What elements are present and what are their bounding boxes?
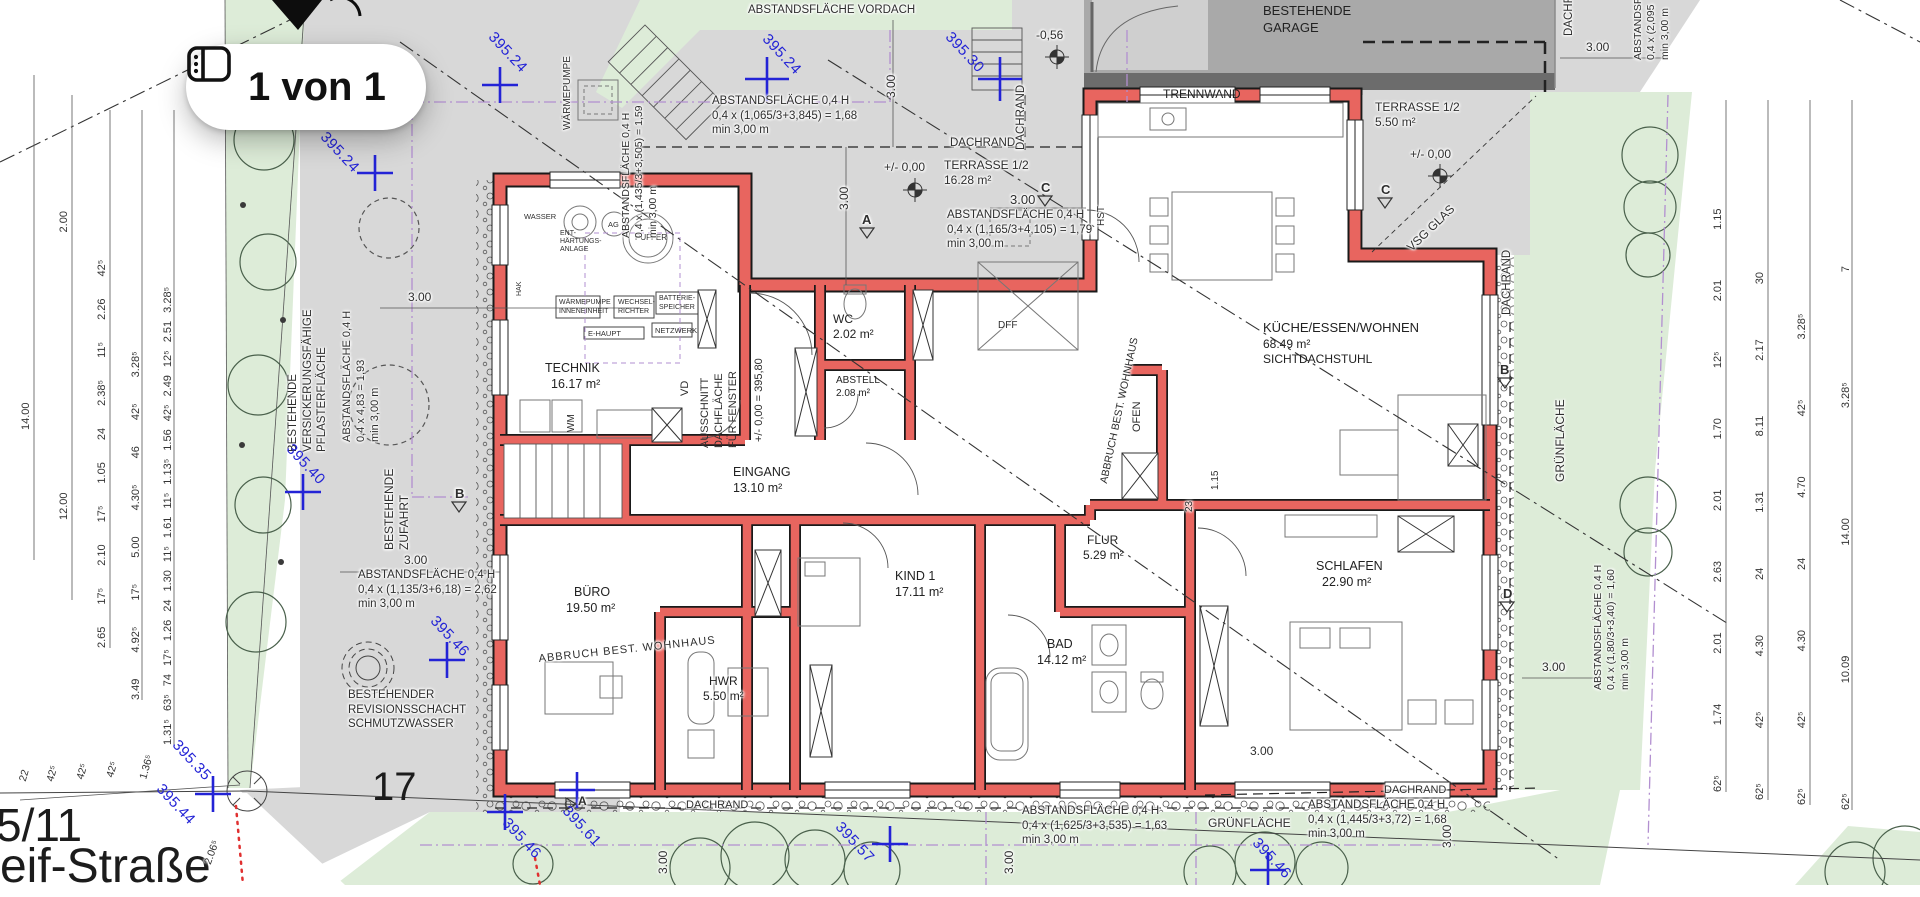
dim-value: 17⁵ [96, 588, 108, 605]
equip-wm: WM [566, 414, 579, 432]
ausschnitt-label: AUSSCHNITTDACHFLÄCHEFÜR FENSTER [698, 371, 740, 448]
abstand-a3: ABSTANDSFLÄCHE 0,4 H0,4 x (1,435/3+3,505… [620, 105, 660, 238]
marker-d-right: D [1503, 586, 1512, 603]
equip-wasser: WASSER [524, 212, 556, 222]
equip-batteriespeicher: BATTERIE-SPEICHER [659, 294, 695, 312]
dim-value: 1.31 [1754, 491, 1766, 512]
page-indicator-text: 1 von 1 [248, 65, 386, 110]
abstand-a2: ABSTANDSFLÄCHE 0,4 H0,4 x (1,165/3+4,105… [947, 208, 1092, 252]
dim-value: 42⁵ [162, 404, 174, 421]
dim-value: 8.11 [1754, 416, 1766, 437]
gruen-bottom: GRÜNFLÄCHE [1208, 816, 1291, 831]
abstand-a5: ABSTANDSFLÄCHE 0,4 H0,4 x (1,135/3+6,18)… [358, 568, 497, 612]
marker-c-left: C [1041, 180, 1050, 197]
hst-label: HST [1096, 206, 1109, 226]
dim-value: 62⁵ [1796, 788, 1808, 805]
abstand-a7: ABSTANDSFLÄCHE 0,4 H0,4 x (1,445/3+3,72)… [1308, 798, 1447, 842]
dim-value: 2.65 [96, 627, 108, 648]
dim-value: 12⁵ [162, 350, 174, 367]
room-kueche: KÜCHE/ESSEN/WOHNEN 68.49 m² SICHTDACHSTU… [1263, 320, 1419, 367]
dachrand-right-vertical: DACHRAND [1500, 250, 1515, 315]
terrasse-east-label: TERRASSE 1/25.50 m² [1375, 100, 1460, 131]
room-flur: FLUR5.29 m² [1083, 533, 1124, 564]
revisionsschacht-label: BESTEHENDERREVISIONSSCHACHTSCHMUTZWASSER [348, 688, 466, 732]
dim-value: 3.28⁵ [162, 287, 174, 313]
abstand-a9: ABSTANDSFLÄCHE0,4 x (2,095min 3,00 m [1632, 0, 1672, 60]
dim-value: 7 [1840, 266, 1852, 272]
room-abstell: ABSTELL2.08 m² [836, 375, 880, 401]
dim-value: 4.92⁵ [130, 627, 142, 653]
equip-enthaertung: ENT-HÄRTUNGS-ANLAGE [560, 230, 601, 254]
dachrand-bottom: DACHRAND [686, 798, 748, 812]
dim-value: 62⁵ [1712, 775, 1724, 792]
dim-value: 4.30 [1796, 630, 1808, 651]
dim-value: 62⁵ [1840, 793, 1852, 810]
equip-waermepumpe-innen: WÄRMEPUMPEINNENEINHEIT [559, 298, 611, 316]
dim-300: 3.00 [1002, 851, 1017, 874]
ofen-label: OFEN [1130, 401, 1144, 432]
dim-115: 1.15 [1210, 471, 1223, 490]
gruen-right-vertical: GRÜNFLÄCHE [1553, 399, 1568, 482]
dim-value: 5.00 [130, 536, 142, 557]
dim-value: 3.28⁵ [1796, 314, 1808, 340]
dim-value: 2.63 [1712, 561, 1724, 582]
dim-value: 42⁵ [130, 403, 142, 420]
floor-plan-viewer: ABSTANDSFLÄCHE VORDACH BESTEHENDEGARAGE … [0, 0, 1920, 885]
terrasse-west-label: TERRASSE 1/216.28 m² [944, 158, 1029, 189]
dachrand-top: DACHRAND [950, 136, 1015, 151]
dim-value: 1.74 [1712, 704, 1724, 725]
dim-value: 2.26 [96, 299, 108, 320]
dim-value: 63⁵ [162, 694, 174, 711]
dim-chain-left-4: 3.28⁵ 42⁵ 46 4.30⁵ 5.00 17⁵ 4.92⁵ 3.49 [130, 351, 142, 700]
dim-value: 24 [1796, 558, 1808, 570]
abstand-a4: ABSTANDSFLÄCHE 0,4 H0,4 x 4,83 = 1,93min… [340, 311, 382, 442]
dim-value: 3.49 [130, 679, 142, 700]
dim-chain-left-2: 2.00 12.00 [58, 211, 70, 520]
dim-300: 3.00 [1250, 744, 1273, 759]
dim-value: 2.49 [162, 375, 174, 396]
equip-hak: HAK [516, 282, 525, 296]
garage-label: BESTEHENDEGARAGE [1263, 3, 1351, 36]
dim-300: 3.00 [656, 851, 671, 874]
trennwand-label: TRENNWAND [1163, 87, 1241, 102]
dim-value: 2.38⁵ [96, 380, 108, 406]
dim-value: 74 [162, 674, 174, 686]
street-name: reif-Straße [0, 836, 211, 897]
dim-value: 1.13⁵ [162, 459, 174, 485]
garage-level: -0,56 [1036, 28, 1063, 43]
dim-value: 2.10 [96, 544, 108, 565]
dim-value: 2.01 [1712, 280, 1724, 301]
dachrand-bottom-right: DACHRAND [1384, 783, 1446, 797]
dim-value: 1.26 [162, 620, 174, 641]
dim-value: 3.28⁵ [1840, 382, 1852, 408]
dim-value: 3.28⁵ [130, 351, 142, 377]
abstand-a6: ABSTANDSFLÄCHE 0,4 H0,4 x (1,625/3+3,535… [1022, 804, 1167, 848]
marker-b-left: B [455, 486, 464, 503]
zero-level-west: +/- 0,00 [884, 160, 925, 175]
dim-chain-right-1: 1.15 2.01 12⁵ 1.70 2.01 2.63 2.01 1.74 6… [1712, 208, 1724, 792]
dim-value: 17⁵ [96, 506, 108, 523]
room-buero: BÜRO19.50 m² [566, 584, 615, 616]
zero-abs-label: +/- 0,00 = 395,80 [752, 358, 766, 442]
abstand-a1: ABSTANDSFLÄCHE 0,4 H0,4 x (1,065/3+3,845… [712, 94, 857, 138]
dim-value: 30 [1754, 272, 1766, 284]
dim-chain-right-4: 7 3.28⁵ 14.00 10.09 62⁵ [1840, 266, 1852, 810]
dim-300: 3.00 [408, 290, 431, 305]
dim-value: 1.15 [1712, 208, 1724, 229]
dim-value: 1.70 [1712, 418, 1724, 439]
dachrand-topright-vertical: DACHRAND [1562, 0, 1577, 36]
marker-a-bottom: A [578, 794, 587, 809]
dim-value: 17⁵ [162, 649, 174, 666]
room-eingang: EINGANG13.10 m² [733, 464, 791, 496]
dim-value: 17⁵ [130, 584, 142, 601]
dim-300-terrace: 3.00 [1010, 192, 1035, 209]
page-indicator-pill[interactable]: 1 von 1 [186, 44, 426, 130]
dim-value: 2.01 [1712, 490, 1724, 511]
dim-value: 12⁵ [1712, 351, 1724, 368]
dim-300: 3.00 [884, 75, 899, 98]
dim-value: 46 [130, 446, 142, 458]
equip-netzwerk: NETZWERK [655, 326, 697, 336]
parcel-17: 17 [372, 762, 417, 813]
zero-level-east: +/- 0,00 [1410, 147, 1451, 162]
dim-value: 1.61 [162, 517, 174, 538]
dim-300: 3.00 [837, 187, 852, 210]
room-bad: BAD14.12 m² [1037, 636, 1086, 668]
dim-value: 1.30 [162, 570, 174, 591]
room-schlafen: SCHLAFEN22.90 m² [1316, 558, 1383, 590]
vd-label: VD [678, 381, 692, 396]
marker-c-right: C [1381, 182, 1390, 199]
dim-300: 3.00 [1586, 40, 1609, 55]
dim-value: 11⁵ [162, 493, 174, 509]
dim-chain-left-3: 42⁵ 2.26 11⁵ 2.38⁵ 24 1.05 17⁵ 2.10 17⁵ … [96, 260, 108, 648]
dim-value: 12.00 [58, 492, 70, 520]
dff-label: DFF [998, 320, 1017, 333]
dim-chain-left-1: 14.00 [20, 402, 32, 430]
dim-23: 23 [1184, 501, 1197, 512]
marker-b-right: B [1500, 362, 1509, 379]
room-hwr: HWR5.50 m² [703, 674, 744, 705]
dim-value: 1.56 [162, 429, 174, 450]
dim-chain-right-3: 3.28⁵ 42⁵ 4.70 24 4.30 42⁵ 62⁵ [1796, 314, 1808, 805]
equip-ehaupt: E-HAUPT [588, 329, 621, 339]
dim-value: 22 [17, 768, 32, 783]
dim-value: 2.01 [1712, 632, 1724, 653]
dim-value: 2.51 [162, 321, 174, 342]
dim-value: 4.30 [1754, 635, 1766, 656]
equip-ag: AG [608, 220, 619, 230]
dim-300: 3.00 [1542, 660, 1565, 675]
waermepumpe-aussen: WÄRMEPUMPE [562, 56, 575, 130]
dim-value: 14.00 [20, 402, 32, 430]
dim-300: 3.00 [404, 553, 427, 568]
zufahrt-label: BESTEHENDEZUFAHRT [382, 469, 413, 550]
dim-chain-right-2: 30 2.17 8.11 1.31 24 4.30 42⁵ 62⁵ [1754, 272, 1766, 800]
dim-value: 2.17 [1754, 339, 1766, 360]
dim-value: 11⁵ [162, 546, 174, 562]
dim-value: 4.30⁵ [130, 484, 142, 510]
dim-value: 14.00 [1840, 518, 1852, 546]
dim-value: 1.31⁵ [162, 719, 174, 745]
dim-value: 10.09 [1840, 656, 1852, 684]
dim-value: 1.05 [96, 462, 108, 483]
dim-value: 62⁵ [1754, 783, 1766, 800]
room-kind1: KIND 117.11 m² [895, 568, 943, 600]
abstand-a8: ABSTANDSFLÄCHE 0,4 H0,4 x (1,80/3+3,40) … [1592, 565, 1632, 690]
dim-value: 42⁵ [96, 260, 108, 277]
pflaster-label: BESTEHENDEVERSICKERUNGSFÄHIGEPFLASTERFLÄ… [286, 310, 330, 453]
equip-wechselrichter: WECHSEL-RICHTER [618, 298, 655, 316]
dim-value: 24 [1754, 568, 1766, 580]
dim-value: 24 [162, 600, 174, 612]
dim-value: 11⁵ [96, 342, 108, 358]
dim-value: 24 [96, 428, 108, 440]
dim-300: 3.00 [1440, 825, 1455, 848]
dim-chain-left-5: 3.28⁵ 2.51 12⁵ 2.49 42⁵ 1.56 1.13⁵ 11⁵ 1… [162, 287, 174, 745]
dim-value: 2.00 [58, 211, 70, 232]
room-wc: WC2.02 m² [833, 312, 874, 343]
room-technik: TECHNIK16.17 m² [545, 360, 600, 392]
dim-value: 42⁵ [1796, 711, 1808, 728]
dachrand-top-vertical: DACHRAND [1014, 85, 1029, 150]
dim-value: 42⁵ [1796, 400, 1808, 417]
marker-a-top: A [862, 212, 871, 229]
vordach-label: ABSTANDSFLÄCHE VORDACH [748, 3, 915, 18]
dim-value: 4.70 [1796, 476, 1808, 497]
dim-value: 42⁵ [1754, 711, 1766, 728]
